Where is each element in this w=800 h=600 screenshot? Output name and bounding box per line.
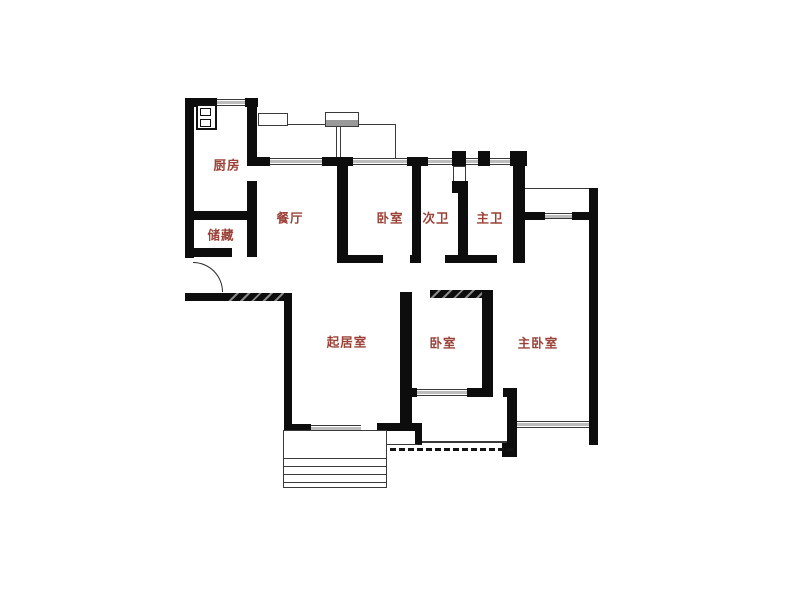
window bbox=[517, 421, 589, 428]
wall bbox=[589, 188, 598, 445]
wall bbox=[407, 157, 428, 166]
balcony-rail-line bbox=[288, 124, 325, 125]
room-label-dining: 餐厅 bbox=[276, 208, 303, 227]
entrance-steps bbox=[283, 430, 387, 488]
wall bbox=[185, 98, 194, 258]
platform-edge-line bbox=[525, 188, 592, 189]
wall bbox=[452, 181, 468, 193]
flue-box bbox=[258, 113, 288, 126]
room-label-bath-master: 主卫 bbox=[476, 208, 503, 227]
window bbox=[466, 158, 478, 165]
wall-watermarked bbox=[228, 293, 290, 301]
balcony-rail-line bbox=[336, 127, 337, 158]
wall bbox=[337, 255, 383, 263]
window bbox=[353, 158, 407, 165]
balcony-rail-line bbox=[395, 124, 396, 158]
wall bbox=[247, 98, 257, 165]
balcony-rail-line bbox=[359, 124, 396, 125]
floor-plan: 厨房 储藏 餐厅 卧室 次卫 主卫 起居室 卧室 主卧室 bbox=[0, 0, 800, 600]
wall bbox=[572, 212, 592, 220]
wall bbox=[507, 390, 517, 445]
step-line bbox=[284, 482, 386, 483]
room-label-bedroom-master: 主卧室 bbox=[518, 333, 559, 352]
window bbox=[428, 158, 452, 165]
room-label-bedroom-north: 卧室 bbox=[376, 208, 403, 227]
balcony-rail-line bbox=[340, 127, 341, 158]
wall bbox=[525, 212, 545, 220]
sink-basin bbox=[200, 108, 211, 116]
wall bbox=[513, 255, 525, 263]
wall bbox=[337, 157, 348, 263]
wall bbox=[458, 193, 468, 263]
wall bbox=[400, 292, 412, 427]
room-label-storage: 储藏 bbox=[207, 225, 234, 244]
sink-icon bbox=[196, 104, 217, 130]
wall bbox=[410, 255, 421, 263]
window bbox=[270, 158, 322, 165]
room-label-living-room: 起居室 bbox=[327, 332, 368, 351]
window bbox=[545, 213, 572, 219]
window bbox=[490, 158, 510, 165]
wall bbox=[400, 388, 417, 397]
window bbox=[417, 389, 467, 396]
wall bbox=[188, 211, 250, 220]
wall bbox=[284, 293, 292, 425]
wall bbox=[482, 290, 493, 396]
window bbox=[217, 99, 245, 106]
entry-door-arc bbox=[193, 262, 223, 292]
flue-box bbox=[325, 112, 359, 127]
wall bbox=[412, 166, 421, 263]
room-label-kitchen: 厨房 bbox=[213, 155, 240, 174]
wall bbox=[188, 248, 232, 257]
wall bbox=[247, 157, 270, 166]
room-label-bath-second: 次卫 bbox=[422, 208, 449, 227]
wall bbox=[452, 151, 466, 166]
sink-basin bbox=[200, 119, 211, 127]
wall bbox=[513, 151, 525, 260]
dashed-line bbox=[390, 448, 513, 451]
step-line bbox=[284, 458, 386, 459]
wall bbox=[445, 255, 497, 263]
wall bbox=[478, 151, 490, 166]
step-line bbox=[284, 466, 386, 467]
step-line bbox=[284, 474, 386, 475]
wall bbox=[467, 388, 493, 397]
room-label-bedroom-middle: 卧室 bbox=[429, 333, 456, 352]
balcony-edge-line bbox=[422, 441, 507, 443]
